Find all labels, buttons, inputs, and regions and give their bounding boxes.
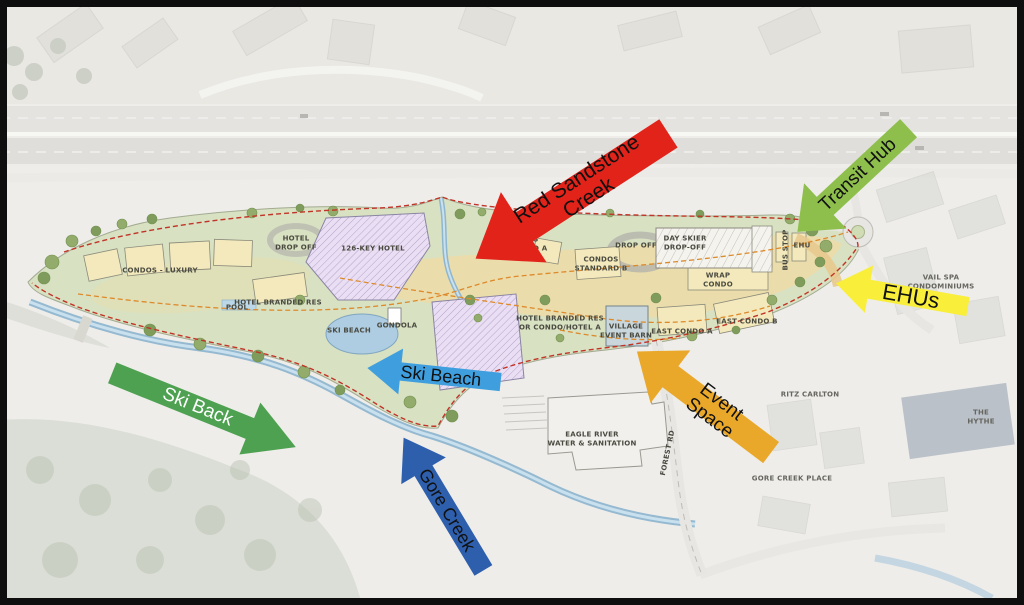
plan-label-bus-stop: BUS STOP (782, 230, 791, 271)
plan-label-condo-hotel-a: HOTEL BRANDED RES OR CONDO/HOTEL A (516, 314, 604, 332)
plan-label-gondola: GONDOLA (377, 322, 418, 331)
plan-label-eagle-river: EAGLE RIVER WATER & SANITATION (547, 430, 636, 448)
plan-label-key-hotel: 126-KEY HOTEL (341, 245, 405, 254)
plan-label-condos-luxury: CONDOS - LUXURY (122, 267, 198, 276)
map-canvas: CONDOS - LUXURY HOTEL DROP OFF 126-KEY H… (7, 7, 1017, 598)
context-label-ritz-carlton: RITZ CARLTON (781, 391, 840, 400)
annotated-site-plan-figure: CONDOS - LUXURY HOTEL DROP OFF 126-KEY H… (0, 0, 1024, 605)
plan-label-hotel-drop-off: HOTEL DROP OFF (275, 234, 317, 252)
plan-label-ski-beach: SKI BEACH (327, 327, 371, 336)
plan-label-village-event-barn: VILLAGE EVENT BARN (600, 322, 652, 340)
plan-label-east-condo-b: EAST CONDO B (716, 318, 777, 327)
plan-label-wrap-condo: WRAP CONDO (703, 271, 733, 289)
plan-label-drop-off: DROP OFF (615, 242, 657, 251)
context-label-gore-creek-place: GORE CREEK PLACE (752, 475, 832, 484)
plan-label-day-skier-drop-off: DAY SKIER DROP-OFF (663, 234, 706, 252)
context-label-the-hythe: THE HYTHE (963, 408, 999, 426)
plan-label-pool: POOL (226, 304, 248, 313)
plan-label-condos-standard-b: CONDOS STANDARD B (575, 255, 628, 273)
